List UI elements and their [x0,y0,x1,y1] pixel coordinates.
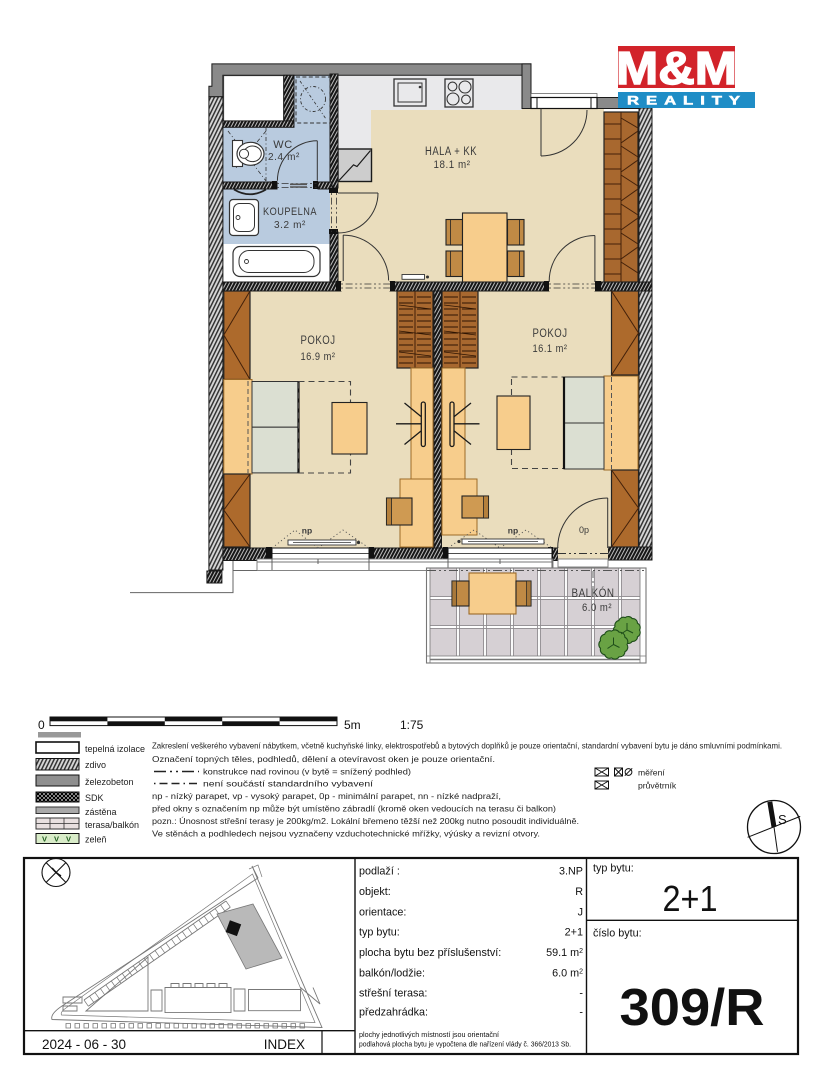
svg-text:V: V [42,835,47,844]
svg-text:typ bytu:: typ bytu: [593,863,634,875]
svg-text:číslo bytu:: číslo bytu: [593,928,642,940]
svg-text:průvětrník: průvětrník [638,781,677,791]
svg-text:podlahová plocha bytu je vypoč: podlahová plocha bytu je vypočtena dle n… [359,1040,571,1049]
svg-text:V: V [66,835,71,844]
svg-text:V: V [54,835,59,844]
svg-text:2+1: 2+1 [565,927,583,939]
svg-text:R: R [575,886,583,898]
svg-text:1:75: 1:75 [400,718,424,732]
svg-text:16.1 m²: 16.1 m² [533,343,568,355]
svg-text:3.NP: 3.NP [559,866,583,878]
svg-text:16.9 m²: 16.9 m² [301,351,336,363]
svg-text:terasa/balkón: terasa/balkón [85,820,139,830]
svg-text:konstrukce nad rovinou (v bytě: konstrukce nad rovinou (v bytě = snížený… [203,767,411,777]
svg-text:tepelná izolace: tepelná izolace [85,744,145,754]
svg-text:REALITY: REALITY [627,94,747,108]
svg-text:3.2 m²: 3.2 m² [274,220,306,231]
svg-text:np: np [302,526,312,536]
svg-text:typ bytu:: typ bytu: [359,927,400,939]
svg-text:plocha bytu bez příslušenství:: plocha bytu bez příslušenství: [359,947,501,959]
svg-text:59.1 m2: 59.1 m2 [546,947,583,959]
svg-text:před okny s označením np může: před okny s označením np může být umístě… [152,804,556,814]
svg-text:zástěna: zástěna [85,807,117,817]
svg-text:WC: WC [273,139,293,151]
svg-text:plochy jednotlivých místností: plochy jednotlivých místností jsou orien… [359,1030,499,1039]
svg-text:POKOJ: POKOJ [533,328,568,340]
svg-text:6.0 m2: 6.0 m2 [552,968,583,980]
svg-text:předzahrádka:: předzahrádka: [359,1007,428,1019]
svg-text:2024 - 06 - 30: 2024 - 06 - 30 [42,1037,126,1052]
svg-text:0p: 0p [579,525,589,535]
svg-text:np - nízký parapet, vp - vysok: np - nízký parapet, vp - vysoký parapet,… [152,791,501,801]
svg-text:INDEX: INDEX [264,1037,305,1052]
svg-text:Označení topných těles, podhle: Označení topných těles, podhledů, dělení… [152,754,495,764]
svg-text:Ve stěnách a podhledech nejsou: Ve stěnách a podhledech nejsou vyznačeny… [152,829,540,839]
svg-text:M&M: M&M [616,42,737,94]
svg-text:železobeton: železobeton [85,777,134,787]
svg-text:KOUPELNA: KOUPELNA [263,206,317,218]
svg-text:SDK: SDK [85,793,104,803]
svg-text:S: S [778,812,787,827]
svg-text:pozn.: Únosnost střešní terasy: pozn.: Únosnost střešní terasy je 200kg/… [152,816,579,826]
svg-text:zdivo: zdivo [85,760,106,770]
svg-text:np: np [508,526,518,536]
svg-text:-: - [579,987,583,999]
svg-text:BALKÓN: BALKÓN [572,587,615,600]
svg-text:balkón/lodžie:: balkón/lodžie: [359,968,425,980]
svg-text:309/R: 309/R [620,979,765,1037]
svg-text:zeleň: zeleň [85,835,107,845]
svg-text:18.1 m²: 18.1 m² [434,159,471,171]
svg-text:podlaží :: podlaží : [359,866,400,878]
svg-text:POKOJ: POKOJ [301,335,336,347]
svg-text:střešní terasa:: střešní terasa: [359,987,427,999]
svg-text:2+1: 2+1 [663,878,718,919]
svg-text:6.0 m²: 6.0 m² [582,602,612,614]
svg-text:Zakreslení veškerého vybavení: Zakreslení veškerého vybavení nábytkem, … [152,741,782,751]
svg-text:5m: 5m [344,718,361,732]
svg-text:0: 0 [38,718,45,732]
svg-text:J: J [578,906,583,918]
svg-text:orientace:: orientace: [359,906,406,918]
svg-text:-: - [579,1007,583,1019]
svg-text:není součástí standardního vyb: není součástí standardního vybavení [203,779,374,789]
svg-text:měření: měření [638,768,665,778]
svg-text:objekt:: objekt: [359,886,391,898]
svg-text:HALA + KK: HALA + KK [425,146,477,158]
svg-text:2.4 m²: 2.4 m² [268,152,300,163]
